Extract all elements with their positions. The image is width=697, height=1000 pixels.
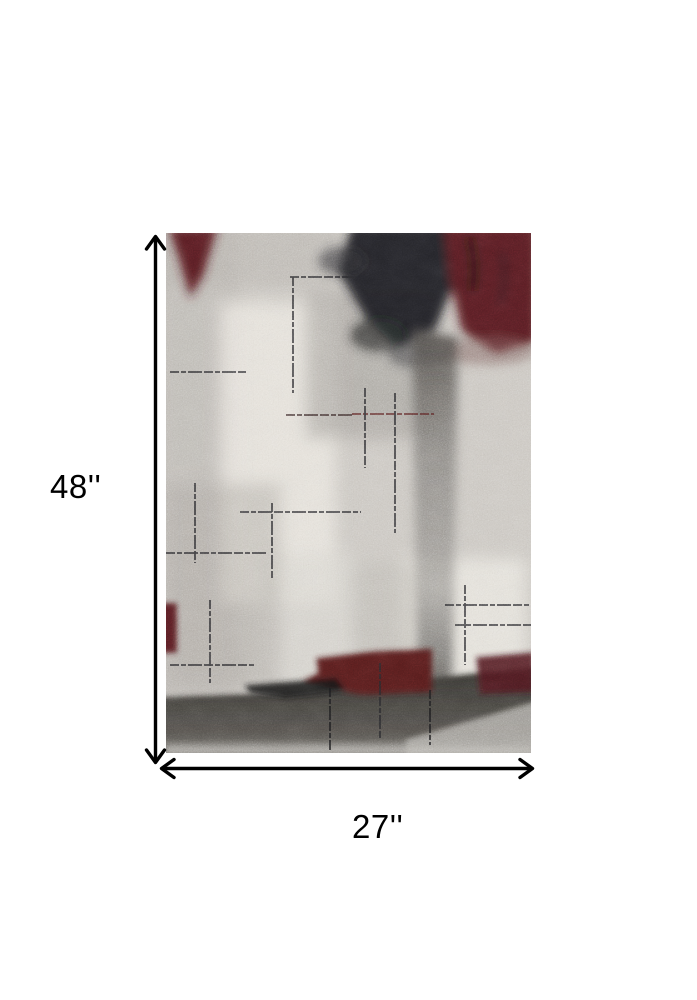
rug-image — [166, 233, 531, 753]
height-dimension-label: 48'' — [50, 470, 101, 503]
rug-texture — [166, 233, 531, 753]
width-dimension-label: 27'' — [352, 810, 403, 843]
height-arrow — [147, 237, 165, 763]
product-dimension-image: 48'' 27'' — [0, 0, 697, 1000]
width-arrow — [162, 760, 533, 778]
